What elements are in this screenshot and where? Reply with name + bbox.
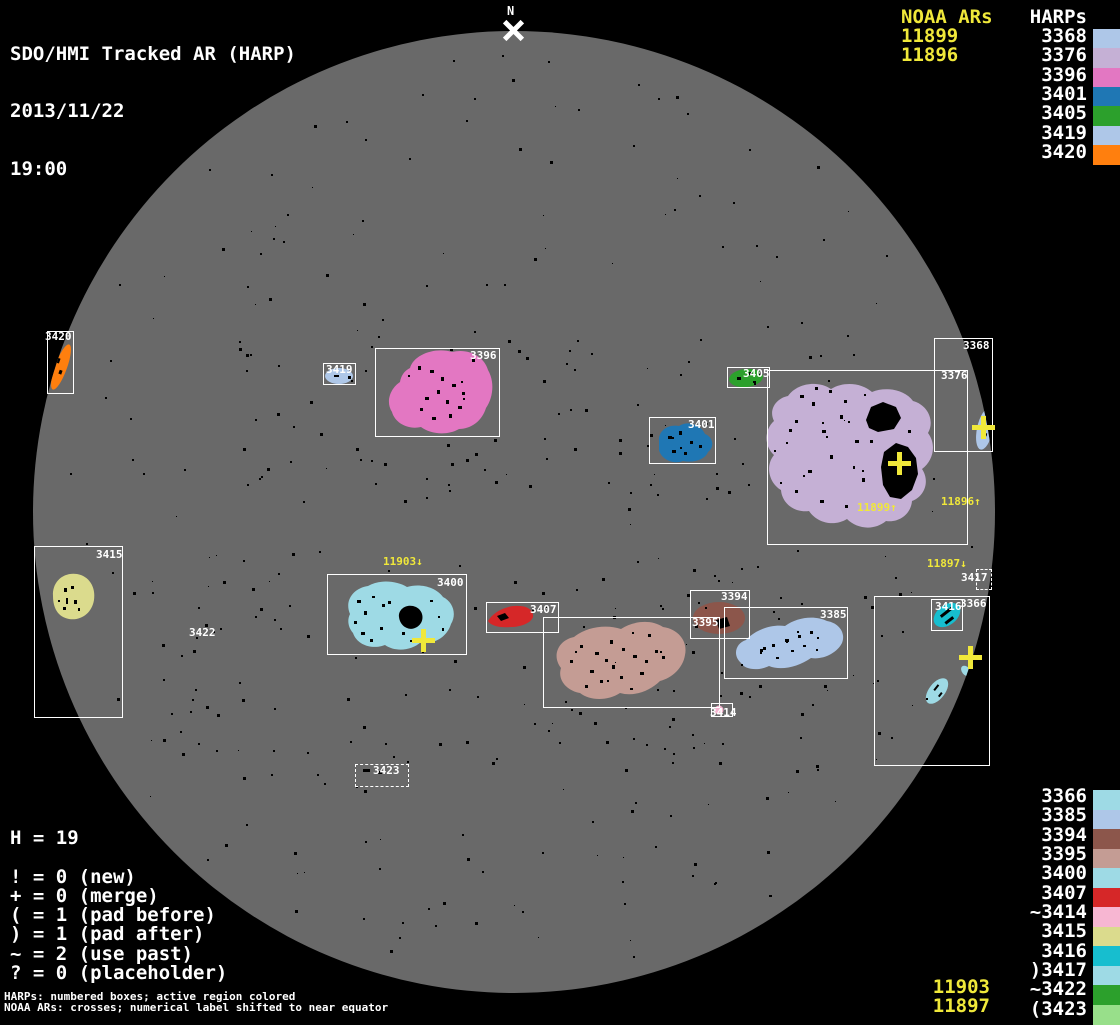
legend-swatch-3400 [1093, 868, 1120, 888]
harp-label-3419: 3419 [326, 364, 353, 375]
legend-swatch-3417 [1093, 966, 1120, 986]
page-title: SDO/HMI Tracked AR (HARP) [10, 45, 296, 64]
legend-swatch-3366 [1093, 790, 1120, 810]
noaa-label-11903: 11903↓ [383, 556, 423, 567]
noaa-label-11896: 11896↑ [941, 496, 981, 507]
legend-noaa-11897: 11897 [900, 997, 990, 1016]
harp-label-3423: 3423 [373, 765, 400, 776]
legend-swatch-3368 [1093, 29, 1120, 49]
harp-label-3368: 3368 [963, 340, 990, 351]
legend-harp-3385: 3385 [960, 806, 1087, 825]
harp-label-3400: 3400 [437, 577, 464, 588]
header-time: 19:00 [10, 160, 296, 179]
legend-swatch-3385 [1093, 810, 1120, 830]
legend-swatch-3422 [1093, 985, 1120, 1005]
legend-swatch-3401 [1093, 87, 1120, 107]
north-x-marker [501, 18, 526, 43]
harp-label-3405: 3405 [743, 368, 770, 379]
harp-label-3420: 3420 [45, 331, 72, 342]
legend-swatch-3416 [1093, 946, 1120, 966]
sdo-hmi-harp-plot: { "header":{"title":"SDO/HMI Tracked AR … [0, 0, 1120, 1024]
harp-label-3415: 3415 [96, 549, 123, 560]
harp-label-3385: 3385 [820, 609, 847, 620]
header-block: SDO/HMI Tracked AR (HARP) 2013/11/22 19:… [10, 6, 296, 199]
noaa-label-11899: 11899↑ [857, 502, 897, 513]
harp-box-3395 [543, 617, 720, 708]
legend-swatch-3394 [1093, 829, 1120, 849]
harp-label-3417: 3417 [961, 572, 988, 583]
harp-label-3394: 3394 [721, 591, 748, 602]
noaa-cross-11903 [412, 629, 435, 652]
harp-box-3376 [767, 370, 968, 545]
legend-swatch-3407 [1093, 888, 1120, 908]
legend-swatch-3414 [1093, 907, 1120, 927]
legend-harp-3405: 3405 [987, 104, 1087, 123]
north-label: N [507, 5, 514, 17]
legend-swatch-3419 [1093, 126, 1120, 146]
stat-pad-after: ) = 1 (pad after) [10, 925, 204, 944]
noaa-cross-11899 [888, 452, 911, 475]
noaa-label-11897: 11897↓ [927, 558, 967, 569]
legend-swatch-3405 [1093, 106, 1120, 126]
noaa-cross-11896 [972, 416, 995, 439]
legend-swatch-3420 [1093, 145, 1120, 165]
harp-count: H = 19 [10, 829, 79, 848]
header-date: 2013/11/22 [10, 102, 296, 121]
legend-swatch-3415 [1093, 927, 1120, 947]
harp-label-3376: 3376 [941, 370, 968, 381]
stat-placeholder: ? = 0 (placeholder) [10, 964, 227, 983]
harp-label-3395: 3395 [692, 617, 719, 628]
legend-swatch-3395 [1093, 849, 1120, 869]
harp-label-3416: 3416 [935, 601, 962, 612]
legend-swatch-3376 [1093, 48, 1120, 68]
harp-label-3401: 3401 [688, 419, 715, 430]
footnote-noaa: NOAA ARs: crosses; numerical label shift… [4, 1002, 388, 1014]
noaa-cross-11897 [959, 646, 982, 669]
legend-swatch-3423 [1093, 1005, 1120, 1025]
harp-box-3415 [34, 546, 123, 718]
legend-harp-3400: 3400 [960, 864, 1087, 883]
harp-label-3396: 3396 [470, 350, 497, 361]
legend-harp-3376: 3376 [987, 46, 1087, 65]
harp-label-3407: 3407 [530, 604, 557, 615]
legend-harp-3420: 3420 [987, 143, 1087, 162]
harp-label-3422: 3422 [189, 627, 216, 638]
harp-label-3414: 3414 [710, 707, 737, 718]
legend-noaa-11896: 11896 [901, 46, 958, 65]
legend-harp-3415: 3415 [960, 922, 1087, 941]
legend-swatch-3396 [1093, 68, 1120, 88]
harp-label-3366: 3366 [960, 598, 987, 609]
